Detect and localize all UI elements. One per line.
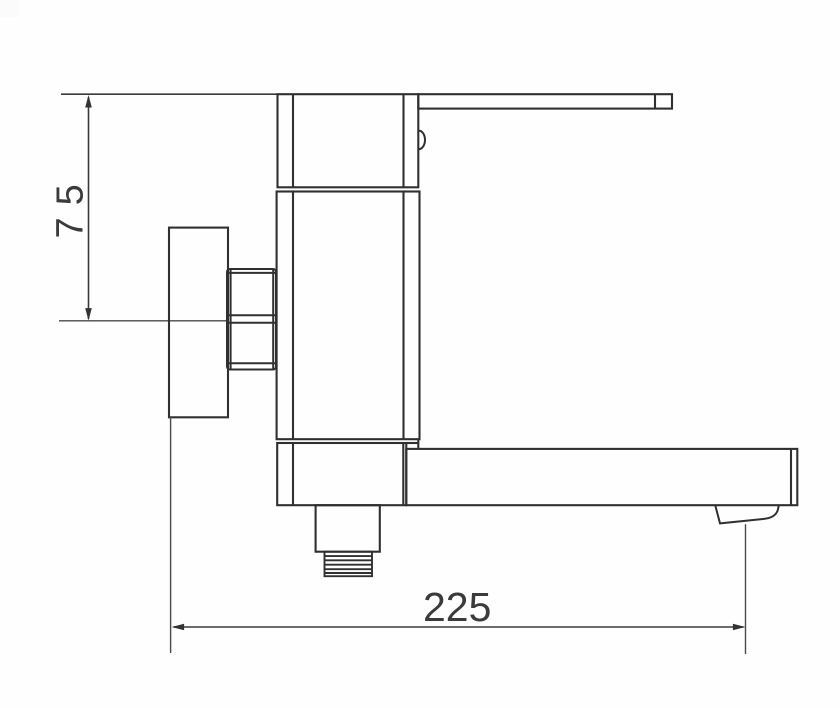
svg-text:225: 225 <box>423 584 491 630</box>
svg-text:75: 75 <box>50 172 92 238</box>
